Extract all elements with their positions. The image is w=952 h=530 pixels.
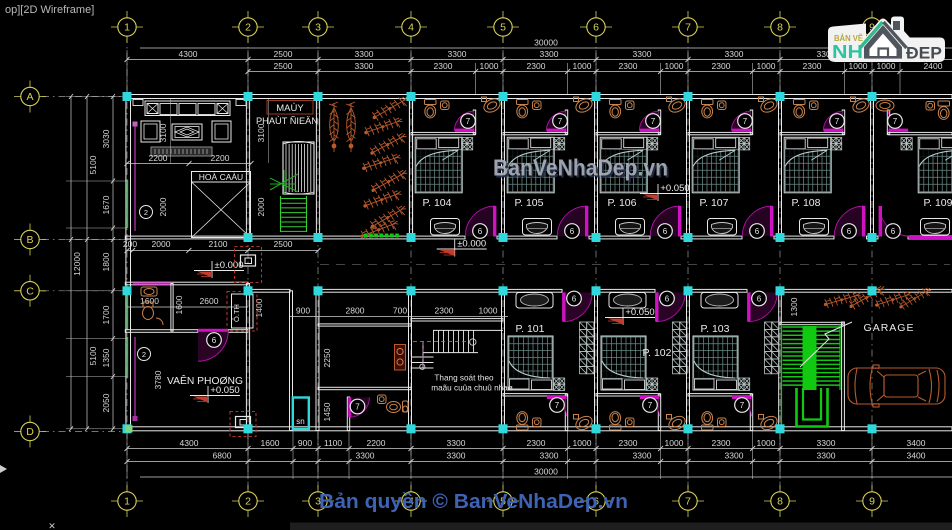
svg-text:1000: 1000 (480, 61, 499, 71)
svg-text:2300: 2300 (434, 61, 453, 71)
svg-text:7: 7 (558, 117, 563, 126)
svg-text:6: 6 (572, 295, 577, 304)
svg-text:3400: 3400 (907, 451, 926, 461)
svg-text:3300: 3300 (355, 49, 374, 59)
svg-text:2: 2 (142, 350, 146, 359)
svg-text:1600: 1600 (261, 438, 280, 448)
svg-text:1600: 1600 (174, 295, 184, 314)
svg-text:2000: 2000 (256, 197, 266, 216)
svg-text:30000: 30000 (534, 38, 558, 48)
svg-text:2300: 2300 (619, 438, 638, 448)
svg-text:C: C (26, 285, 34, 297)
svg-text:7: 7 (651, 117, 656, 126)
svg-text:Thang soát theo: Thang soát theo (434, 374, 494, 383)
svg-text:P. 104: P. 104 (422, 197, 451, 209)
svg-text:7: 7 (893, 117, 898, 126)
svg-text:3300: 3300 (540, 451, 559, 461)
svg-text:PHAÙT ÑIEÄN: PHAÙT ÑIEÄN (256, 116, 318, 127)
svg-text:6: 6 (755, 227, 760, 236)
svg-text:✕: ✕ (48, 521, 56, 530)
svg-text:6: 6 (212, 336, 217, 345)
svg-text:2500: 2500 (274, 61, 293, 71)
svg-text:1800: 1800 (101, 252, 111, 271)
svg-text:2500: 2500 (274, 239, 293, 249)
svg-text:7: 7 (355, 403, 360, 412)
svg-text:2300: 2300 (619, 61, 638, 71)
svg-text:D: D (26, 426, 34, 438)
svg-text:6: 6 (593, 22, 599, 34)
svg-text:1700: 1700 (101, 305, 111, 324)
svg-text:2050: 2050 (101, 393, 111, 412)
svg-text:3300: 3300 (356, 451, 375, 461)
svg-text:4300: 4300 (179, 49, 198, 59)
svg-text:7: 7 (740, 401, 745, 410)
svg-text:±0.000: ±0.000 (215, 260, 244, 271)
svg-text:MAÙY: MAÙY (276, 103, 304, 114)
svg-text:+0.050: +0.050 (660, 183, 689, 194)
svg-text:30000: 30000 (534, 467, 558, 477)
svg-text:BanVeNhaDep.vn: BanVeNhaDep.vn (493, 155, 668, 181)
svg-text:Bản quyền © BanVeNhaDep.vn: Bản quyền © BanVeNhaDep.vn (319, 490, 628, 513)
svg-text:1000: 1000 (665, 61, 684, 71)
svg-text:maãu cuûa chuû nhaø: maãu cuûa chuû nhaø (431, 384, 512, 393)
svg-text:5100: 5100 (88, 346, 98, 365)
svg-text:3300: 3300 (817, 438, 836, 448)
svg-text:2300: 2300 (712, 438, 731, 448)
svg-text:6: 6 (665, 295, 670, 304)
svg-text:2000: 2000 (152, 239, 171, 249)
svg-text:2400: 2400 (924, 61, 943, 71)
svg-text:1000: 1000 (665, 438, 684, 448)
svg-text:6: 6 (663, 227, 668, 236)
svg-text:8: 8 (777, 496, 783, 508)
svg-text:GARAGE: GARAGE (864, 322, 915, 334)
svg-text:3: 3 (315, 22, 321, 34)
svg-text:2100: 2100 (209, 239, 228, 249)
svg-text:2: 2 (245, 496, 251, 508)
svg-text:7: 7 (466, 117, 471, 126)
svg-text:4300: 4300 (180, 438, 199, 448)
svg-text:1000: 1000 (479, 306, 498, 316)
svg-text:6: 6 (891, 227, 896, 236)
svg-text:5: 5 (500, 22, 506, 34)
svg-text:1350: 1350 (101, 348, 111, 367)
svg-text:sn: sn (296, 417, 304, 426)
svg-text:6: 6 (478, 227, 483, 236)
svg-text:P. 109: P. 109 (923, 197, 952, 209)
svg-text:1000: 1000 (573, 61, 592, 71)
svg-text:1450: 1450 (322, 402, 332, 421)
svg-text:1000: 1000 (877, 61, 896, 71)
svg-text:900: 900 (296, 306, 310, 316)
svg-text:2250: 2250 (322, 348, 332, 367)
svg-text:2200: 2200 (367, 438, 386, 448)
svg-text:P. 108: P. 108 (791, 197, 820, 209)
svg-text:1: 1 (124, 496, 130, 508)
svg-text:2300: 2300 (527, 438, 546, 448)
svg-text:7: 7 (555, 401, 560, 410)
svg-text:2800: 2800 (346, 306, 365, 316)
svg-text:1300: 1300 (789, 297, 799, 316)
svg-text:P. 103: P. 103 (700, 323, 729, 335)
svg-text:1000: 1000 (757, 438, 776, 448)
svg-text:3300: 3300 (540, 49, 559, 59)
svg-text:op][2D Wireframe]: op][2D Wireframe] (5, 4, 94, 16)
svg-text:8: 8 (777, 22, 783, 34)
svg-text:200: 200 (123, 239, 137, 249)
svg-text:2200: 2200 (149, 153, 168, 163)
svg-text:2300: 2300 (712, 61, 731, 71)
svg-text:+0.050: +0.050 (625, 307, 654, 318)
svg-text:±0.000: ±0.000 (457, 239, 486, 250)
svg-text:6: 6 (757, 295, 762, 304)
svg-text:7: 7 (685, 22, 691, 34)
svg-text:3300: 3300 (355, 61, 374, 71)
svg-text:900: 900 (298, 438, 312, 448)
svg-text:2300: 2300 (435, 306, 454, 316)
svg-text:P. 105: P. 105 (514, 197, 543, 209)
svg-text:5100: 5100 (88, 155, 98, 174)
svg-text:2200: 2200 (211, 153, 230, 163)
svg-text:3300: 3300 (725, 49, 744, 59)
svg-text:12000: 12000 (72, 252, 82, 276)
svg-text:2: 2 (245, 22, 251, 34)
svg-text:VAÊN PHOØNG: VAÊN PHOØNG (167, 374, 243, 387)
svg-text:1000: 1000 (849, 61, 868, 71)
svg-text:3300: 3300 (447, 451, 466, 461)
svg-text:7: 7 (648, 401, 653, 410)
svg-text:A: A (26, 91, 33, 103)
svg-text:1000: 1000 (757, 61, 776, 71)
svg-text:6: 6 (847, 227, 852, 236)
svg-text:3300: 3300 (633, 49, 652, 59)
svg-text:3300: 3300 (633, 451, 652, 461)
svg-text:1000: 1000 (573, 438, 592, 448)
svg-text:3400: 3400 (907, 438, 926, 448)
svg-text:2: 2 (144, 208, 148, 217)
svg-text:3300: 3300 (447, 438, 466, 448)
svg-text:7: 7 (743, 117, 748, 126)
svg-text:2600: 2600 (200, 296, 219, 306)
svg-text:P. 101: P. 101 (515, 323, 544, 335)
svg-text:2000: 2000 (158, 197, 168, 216)
svg-text:HOÀ CAÀU: HOÀ CAÀU (199, 172, 243, 182)
svg-text:1: 1 (124, 22, 130, 34)
svg-text:P. 106: P. 106 (607, 197, 636, 209)
svg-text:3300: 3300 (448, 49, 467, 59)
svg-text:3780: 3780 (153, 370, 163, 389)
svg-text:3300: 3300 (725, 451, 744, 461)
svg-text:1100: 1100 (324, 438, 343, 448)
svg-text:2300: 2300 (803, 61, 822, 71)
svg-text:4: 4 (408, 22, 414, 34)
svg-text:B: B (26, 234, 33, 246)
svg-text:3300: 3300 (817, 451, 836, 461)
svg-text:1670: 1670 (101, 195, 111, 214)
svg-text:3030: 3030 (101, 129, 111, 148)
svg-text:P. 107: P. 107 (699, 197, 728, 209)
svg-text:7: 7 (835, 117, 840, 126)
svg-text:1400: 1400 (254, 298, 264, 317)
svg-text:2500: 2500 (274, 49, 293, 59)
svg-text:6: 6 (570, 227, 575, 236)
svg-text:3100: 3100 (158, 123, 168, 142)
svg-text:P. 102: P. 102 (642, 347, 671, 359)
svg-text:7: 7 (685, 496, 691, 508)
svg-text:6800: 6800 (213, 451, 232, 461)
svg-text:700: 700 (393, 306, 407, 316)
svg-text:Ô.TH: Ô.TH (232, 304, 241, 322)
svg-text:2300: 2300 (527, 61, 546, 71)
svg-text:9: 9 (869, 496, 875, 508)
